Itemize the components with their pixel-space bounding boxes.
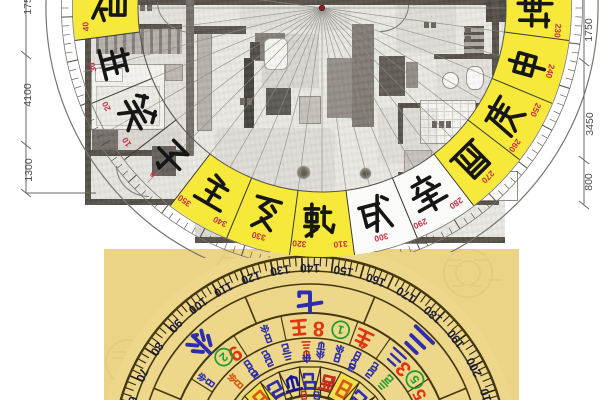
- svg-text:310: 310: [333, 239, 348, 250]
- svg-text:8: 8: [312, 316, 326, 340]
- svg-text:230: 230: [552, 23, 563, 38]
- svg-text:4100: 4100: [22, 83, 34, 107]
- svg-text:40: 40: [80, 21, 91, 31]
- svg-text:0: 0: [148, 169, 159, 180]
- svg-text:20: 20: [100, 100, 113, 113]
- svg-text:1750: 1750: [22, 0, 34, 15]
- svg-text:1300: 1300: [23, 158, 35, 182]
- svg-text:1750: 1750: [583, 18, 595, 42]
- svg-text:140: 140: [300, 261, 320, 275]
- svg-text:320: 320: [291, 238, 306, 249]
- svg-text:3450: 3450: [584, 112, 596, 136]
- svg-text:800: 800: [583, 173, 595, 191]
- svg-text:30: 30: [86, 61, 98, 73]
- svg-text:10: 10: [120, 135, 134, 149]
